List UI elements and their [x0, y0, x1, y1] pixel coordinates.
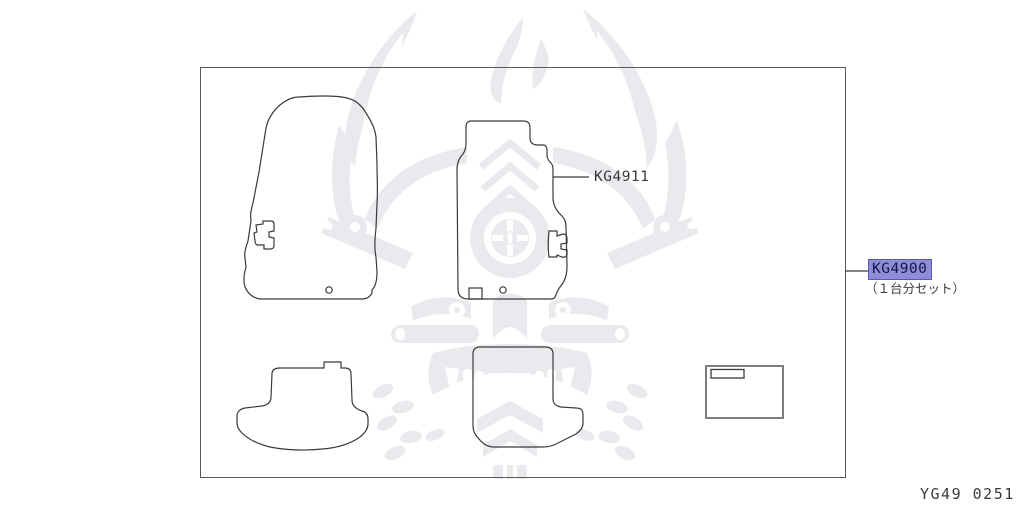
front-mat-lh-pedal-cutout	[254, 221, 274, 249]
floor-mats-line-art	[0, 0, 1024, 507]
part-number-text[interactable]: KG4911	[594, 169, 649, 185]
part-callout-kg4911[interactable]: KG4911	[594, 170, 649, 185]
front-floor-mat-lh[interactable]	[244, 96, 378, 299]
front-mat-rh-cutout	[548, 231, 567, 257]
part-number-highlight[interactable]: KG4900	[868, 259, 932, 280]
front-mat-rh-heel-pad	[469, 288, 482, 299]
front-floor-mat-rh[interactable]	[457, 121, 567, 299]
parts-catalog-page: KG4911 KG4900 （１台分セット） YG49 0251	[0, 0, 1024, 507]
mat-set-label-tag-window	[711, 370, 744, 379]
part-set-note: （１台分セット）	[865, 283, 965, 296]
front-mat-lh-grommet	[326, 287, 332, 293]
rear-floor-mat-lh[interactable]	[237, 362, 368, 450]
rear-floor-mat-rh[interactable]	[473, 347, 583, 447]
part-callout-kg4900-selected[interactable]: KG4900	[868, 259, 932, 280]
diagram-code: YG49 0251	[920, 487, 1015, 502]
front-mat-rh-grommet	[500, 287, 506, 293]
